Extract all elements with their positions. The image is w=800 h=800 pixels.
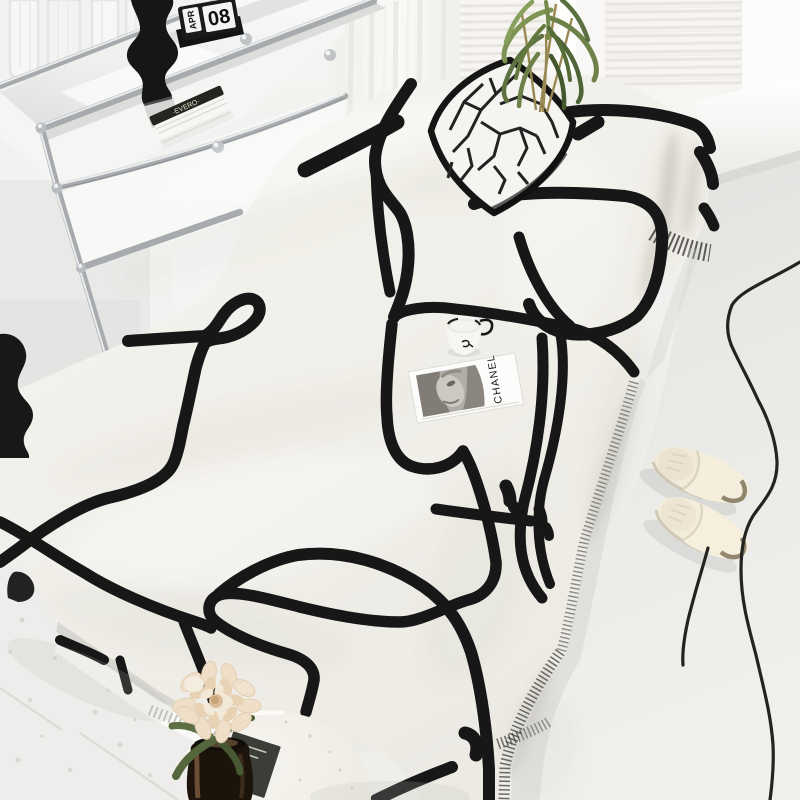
svg-text:08: 08: [206, 5, 232, 31]
